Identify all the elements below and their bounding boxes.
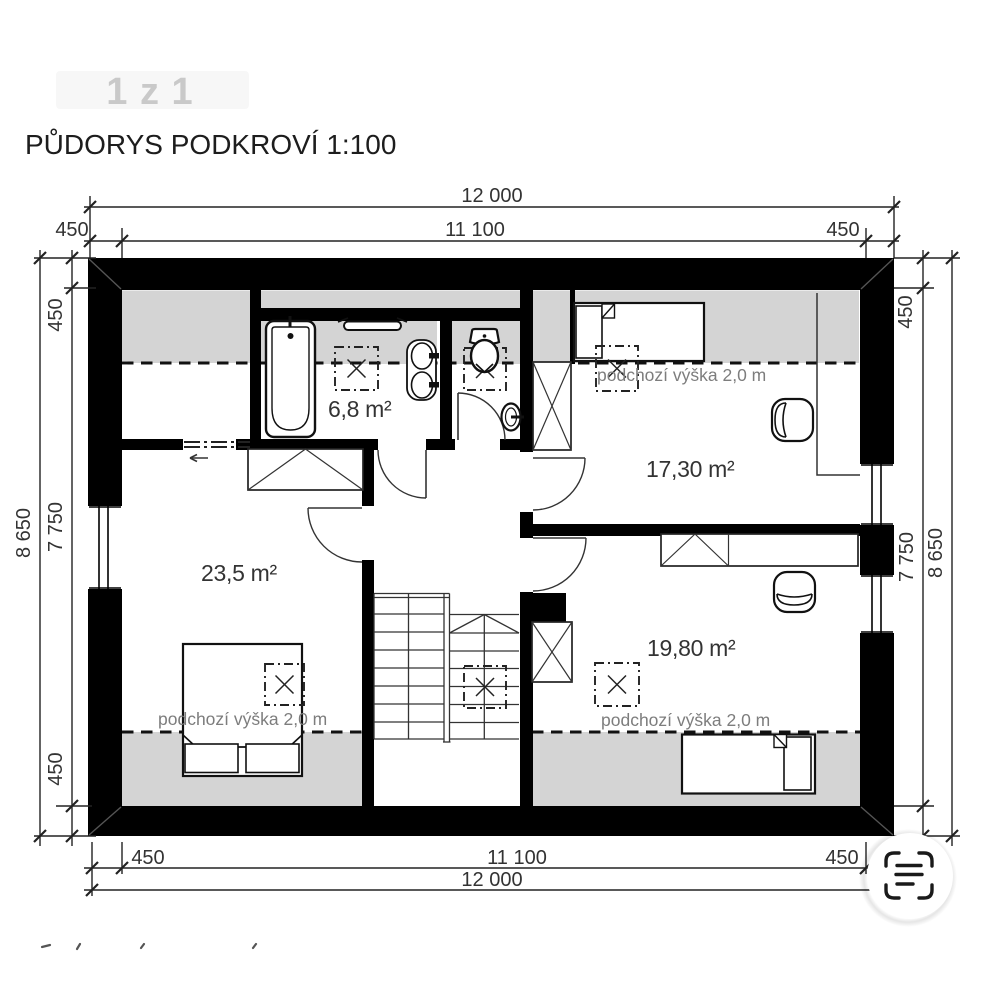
svg-text:450: 450 [131, 847, 164, 869]
svg-text:450: 450 [826, 219, 859, 241]
svg-text:12 000: 12 000 [461, 869, 522, 891]
svg-text:6,8 m²: 6,8 m² [328, 396, 392, 422]
svg-text:11 100: 11 100 [445, 219, 505, 241]
svg-text:7 750: 7 750 [45, 502, 67, 552]
svg-text:1 z 1: 1 z 1 [106, 71, 193, 113]
svg-text:podchozí výška 2,0 m: podchozí výška 2,0 m [601, 710, 770, 730]
svg-text:450: 450 [55, 219, 88, 241]
svg-text:11 100: 11 100 [487, 847, 547, 869]
svg-text:450: 450 [825, 847, 858, 869]
svg-text:450: 450 [45, 298, 67, 331]
svg-text:450: 450 [895, 295, 917, 328]
svg-text:podchozí výška 2,0 m: podchozí výška 2,0 m [597, 365, 766, 385]
svg-text:podchozí výška 2,0 m: podchozí výška 2,0 m [158, 709, 327, 729]
svg-text:12 000: 12 000 [461, 185, 522, 207]
svg-text:8 650: 8 650 [13, 508, 35, 558]
svg-text:8 650: 8 650 [925, 528, 947, 578]
svg-text:23,5 m²: 23,5 m² [201, 560, 278, 586]
svg-text:17,30 m²: 17,30 m² [646, 456, 735, 482]
svg-text:450: 450 [45, 752, 67, 785]
svg-text:7 750: 7 750 [896, 532, 918, 582]
svg-text:19,80 m²: 19,80 m² [647, 635, 736, 661]
svg-text:PŮDORYS PODKROVÍ 1:100: PŮDORYS PODKROVÍ 1:100 [25, 128, 396, 160]
